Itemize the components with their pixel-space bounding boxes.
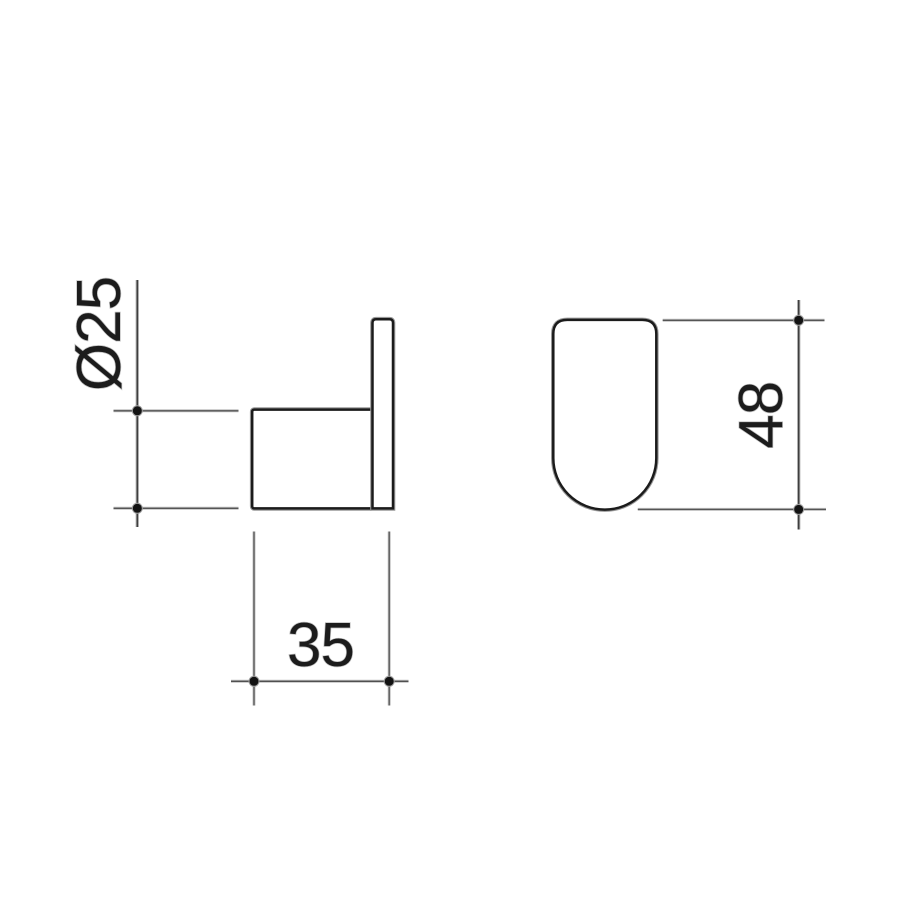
svg-text:48: 48 <box>727 382 796 449</box>
svg-text:35: 35 <box>287 611 354 680</box>
svg-text:Ø25: Ø25 <box>65 277 134 391</box>
